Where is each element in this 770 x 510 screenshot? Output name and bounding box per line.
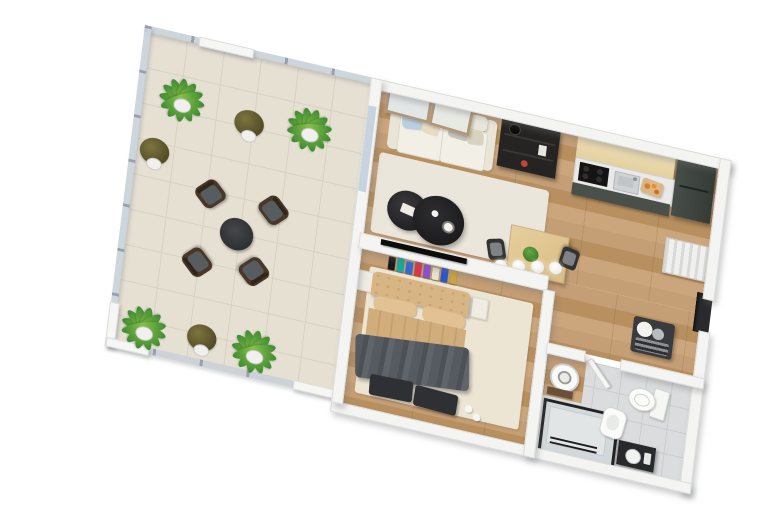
cabinet-seam xyxy=(679,185,708,194)
bowl xyxy=(441,220,455,235)
decor-book xyxy=(538,145,547,157)
nightstand xyxy=(470,296,489,320)
cooktop xyxy=(578,162,610,187)
cutting-board-with-food xyxy=(640,177,665,199)
shelf-divider xyxy=(504,133,555,147)
bench-pillow-white xyxy=(636,320,653,338)
dining-chair xyxy=(486,239,507,260)
cup xyxy=(431,210,439,218)
fridge-tall-cabinet xyxy=(671,158,717,225)
apartment-plan xyxy=(104,25,730,494)
bench-pillow-gray xyxy=(652,327,665,341)
decor-vase xyxy=(520,160,528,168)
floor-plan-render xyxy=(0,0,770,510)
